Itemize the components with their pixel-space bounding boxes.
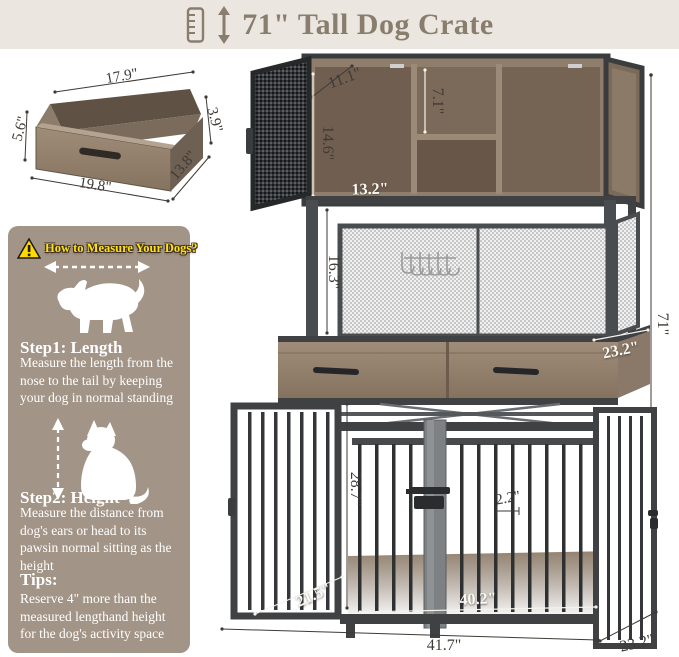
- dim-mesh-section-height: 16.3": [324, 255, 342, 290]
- measure-guide-title: How to Measure Your Dogs?: [45, 241, 198, 256]
- measure-guide-header: How to Measure Your Dogs?: [17, 237, 198, 260]
- dim-top-shelf-height: 7.1": [428, 88, 446, 115]
- door-latch-center: [406, 487, 450, 509]
- dim-overall-width: 41.7": [427, 637, 462, 655]
- drawer-section: [278, 325, 650, 405]
- standing-dog-figure: [32, 258, 162, 345]
- dim-crate-inner-width: 40.2": [459, 590, 497, 610]
- product-infographic: { "header": { "title": "71\" Tall Dog Cr…: [0, 0, 679, 655]
- bottom-crate: [220, 402, 658, 646]
- tips-heading: Tips:: [20, 570, 58, 590]
- dog-crate-illustration: [220, 56, 658, 646]
- warning-icon: [17, 237, 41, 260]
- mesh-door: [253, 59, 309, 208]
- crate-door-right: [596, 410, 658, 646]
- standing-dog-silhouette: [57, 279, 144, 333]
- dim-crate-inner-height: 28.7": [346, 472, 364, 507]
- dim-top-cabinet-height: 14.6": [318, 126, 336, 161]
- top-cabinet: [246, 56, 642, 208]
- step2-text: Measure the distance from dog's ears or …: [20, 504, 186, 574]
- length-arrow: [44, 261, 150, 273]
- dim-top-cabinet-width: 13.2": [351, 180, 388, 199]
- step1-text: Measure the length from the nose to the …: [20, 354, 182, 407]
- dim-overall-height: 71": [653, 313, 671, 336]
- mesh-panel: [340, 226, 608, 336]
- crate-bars: [358, 444, 600, 612]
- tips-text: Reserve 4" more than the measured length…: [20, 590, 180, 643]
- drawer-3d-diagram: [23, 70, 212, 202]
- mesh-section: [306, 196, 638, 345]
- measure-guide-panel: How to Measure Your Dogs? Step1: Length …: [8, 226, 190, 653]
